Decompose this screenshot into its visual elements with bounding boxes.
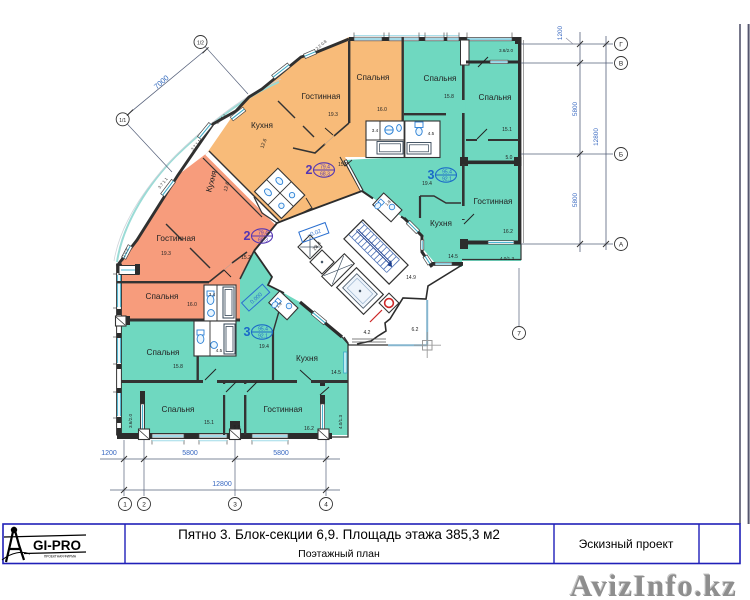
svg-text:68.3: 68.3 (320, 172, 330, 178)
svg-text:1/2: 1/2 (197, 41, 204, 47)
svg-text:Кухня: Кухня (296, 354, 318, 363)
svg-text:16.0: 16.0 (187, 302, 197, 308)
svg-text:1: 1 (123, 502, 127, 509)
svg-text:Гостинная: Гостинная (302, 92, 341, 101)
svg-text:92.1: 92.1 (442, 177, 452, 183)
svg-text:Кухня: Кухня (430, 219, 452, 228)
svg-text:15.2: 15.2 (241, 255, 251, 261)
svg-text:4.5: 4.5 (428, 131, 435, 136)
svg-text:4.5: 4.5 (216, 348, 223, 353)
svg-text:4.0/1.3: 4.0/1.3 (500, 256, 514, 261)
svg-text:15.1: 15.1 (204, 420, 214, 426)
svg-text:95.4: 95.4 (258, 326, 268, 332)
svg-text:2: 2 (306, 163, 313, 177)
svg-text:92.1: 92.1 (258, 334, 268, 340)
svg-text:19.3: 19.3 (161, 251, 171, 257)
svg-text:12800: 12800 (593, 128, 600, 146)
svg-text:Спальня: Спальня (424, 74, 457, 83)
svg-text:79.4: 79.4 (258, 230, 268, 236)
svg-text:Кухня: Кухня (251, 121, 273, 130)
svg-text:15.2: 15.2 (338, 162, 348, 168)
svg-text:1200: 1200 (101, 450, 117, 457)
svg-text:5800: 5800 (572, 101, 579, 116)
svg-text:Б: Б (619, 152, 623, 159)
svg-text:3.6/2.0: 3.6/2.0 (499, 48, 513, 53)
svg-text:68.3: 68.3 (258, 238, 268, 244)
svg-text:ПРОЕКТНАЯ ФИРМА: ПРОЕКТНАЯ ФИРМА (44, 555, 77, 559)
svg-text:19.3: 19.3 (328, 112, 338, 118)
svg-text:Спальня: Спальня (479, 93, 512, 102)
svg-text:Гостинная: Гостинная (264, 405, 303, 414)
svg-text:1200: 1200 (557, 25, 564, 40)
svg-text:15.8: 15.8 (173, 364, 183, 370)
svg-text:4.2: 4.2 (364, 330, 371, 336)
svg-text:1/1: 1/1 (119, 118, 126, 124)
svg-text:15.8: 15.8 (444, 94, 454, 100)
svg-text:5.0: 5.0 (234, 425, 241, 431)
svg-text:Г: Г (619, 42, 623, 49)
svg-text:Спальня: Спальня (357, 73, 390, 82)
svg-text:95.4: 95.4 (442, 169, 452, 175)
svg-text:14.5: 14.5 (331, 370, 341, 376)
svg-text:Пятно 3. Блок-секции 6,9. Площ: Пятно 3. Блок-секции 6,9. Площадь этажа … (178, 527, 500, 542)
svg-text:В: В (619, 61, 623, 68)
svg-text:3.6/2.0: 3.6/2.0 (128, 414, 133, 428)
svg-text:7000: 7000 (152, 73, 170, 91)
svg-text:16.0: 16.0 (377, 107, 387, 113)
svg-text:Эскизный проект: Эскизный проект (579, 537, 674, 551)
svg-text:7: 7 (517, 331, 521, 338)
svg-text:Гостинная: Гостинная (474, 197, 513, 206)
svg-text:2: 2 (142, 502, 146, 509)
svg-text:Спальня: Спальня (146, 292, 179, 301)
svg-text:5.0: 5.0 (506, 155, 513, 161)
svg-text:Поэтажный план: Поэтажный план (298, 548, 380, 560)
svg-text:4: 4 (324, 502, 328, 509)
svg-text:14.9: 14.9 (406, 275, 416, 281)
svg-text:2: 2 (244, 229, 251, 243)
svg-text:GI-PRO: GI-PRO (33, 538, 81, 553)
svg-text:19.4: 19.4 (259, 344, 269, 350)
svg-text:Гостинная: Гостинная (157, 234, 196, 243)
svg-text:5800: 5800 (273, 450, 289, 457)
svg-text:79.4: 79.4 (320, 164, 330, 170)
svg-text:6.2: 6.2 (412, 327, 419, 333)
svg-text:15.1: 15.1 (502, 127, 512, 133)
svg-text:3.4: 3.4 (209, 292, 216, 297)
svg-text:А: А (619, 242, 624, 249)
svg-text:16.2: 16.2 (304, 426, 314, 432)
svg-text:5800: 5800 (572, 192, 579, 207)
svg-text:Спальня: Спальня (147, 348, 180, 357)
svg-text:Спальня: Спальня (162, 405, 195, 414)
svg-text:4.0/1.3: 4.0/1.3 (338, 415, 343, 429)
svg-text:12800: 12800 (212, 481, 232, 488)
svg-text:3.4: 3.4 (372, 128, 379, 133)
svg-text:5800: 5800 (182, 450, 198, 457)
svg-text:14.5: 14.5 (448, 254, 458, 260)
svg-text:16.2: 16.2 (503, 229, 513, 235)
svg-text:3: 3 (233, 502, 237, 509)
svg-text:3: 3 (244, 325, 251, 339)
svg-text:3: 3 (428, 168, 435, 182)
